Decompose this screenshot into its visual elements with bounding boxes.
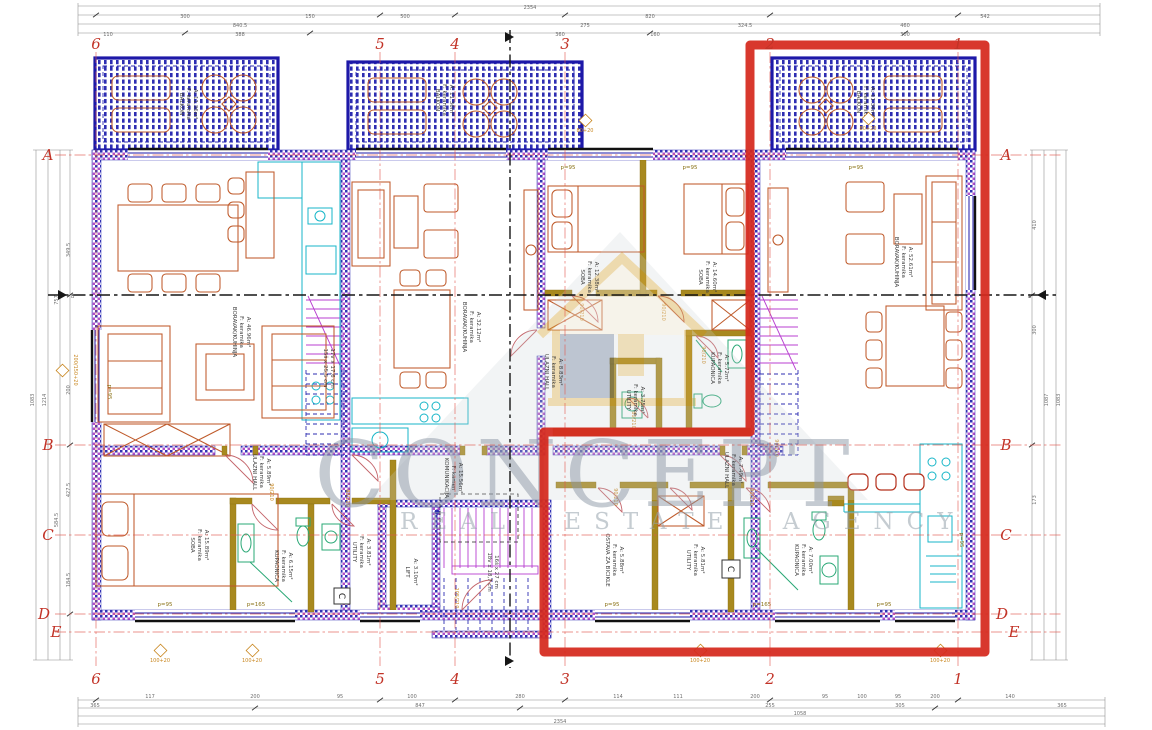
svg-text:100: 100 [407, 694, 417, 700]
c-box: C [334, 588, 350, 604]
grid-col-label: 2 [764, 670, 775, 688]
svg-text:15š x 25,5 cm: 15š x 25,5 cm [322, 349, 329, 388]
svg-text:p=95: p=95 [106, 384, 112, 400]
grid-col-label: 3 [560, 670, 570, 688]
svg-text:1058: 1058 [794, 711, 807, 717]
dimension-strip-left: 349.5 200 427.5 184.5 757 584.5 1214 108… [30, 150, 73, 660]
svg-text:1087: 1087 [1044, 394, 1050, 407]
svg-text:F: keramika: F: keramika [358, 536, 364, 568]
grid-row-label: C [1000, 526, 1012, 544]
balcony-label: BALKON F: keramika A: 11.36m² [178, 88, 199, 120]
svg-text:324.5: 324.5 [738, 23, 752, 29]
svg-text:410: 410 [1032, 220, 1038, 230]
furniture-left-unit [96, 172, 334, 586]
svg-text:80+20: 80+20 [860, 126, 877, 132]
svg-text:UTILITY: UTILITY [351, 542, 357, 563]
stair-label: 16š x 27 cm18v x 18,7 cm [486, 552, 500, 591]
window-tag: 200/150+20 [56, 354, 78, 385]
svg-text:365: 365 [1057, 703, 1067, 709]
svg-text:F: keramika: F: keramika [468, 311, 474, 343]
svg-text:300: 300 [180, 14, 190, 20]
svg-text:A: 5.81m²: A: 5.81m² [699, 546, 706, 573]
window [966, 196, 976, 290]
grid-row-label: E [1008, 623, 1020, 641]
room-label: SOBAF: keramikaA: 14.60m² [697, 261, 718, 293]
svg-text:C: C [336, 593, 346, 599]
grid-col-label: 1 [953, 35, 963, 53]
svg-text:KUPAONICA: KUPAONICA [709, 352, 715, 384]
svg-text:A: 8.83m²: A: 8.83m² [557, 358, 564, 385]
room-label: ULAZNI HALLF: keramikaA: 7.49m² [723, 452, 744, 489]
svg-text:111: 111 [673, 694, 683, 700]
svg-text:18v x 18,7 cm: 18v x 18,7 cm [486, 552, 492, 591]
dimension-strip-bottom: 365 117 200 95 100 280 114 111 200 95 10… [78, 694, 1105, 727]
svg-text:F: keramika: F: keramika [730, 454, 736, 486]
grid-row-label: C [42, 526, 54, 544]
svg-text:80+20: 80+20 [577, 128, 594, 134]
window [548, 149, 653, 160]
svg-text:F: keramika: F: keramika [196, 529, 202, 561]
window [775, 610, 880, 621]
svg-text:427.5: 427.5 [66, 483, 72, 497]
svg-text:A: 11.36m²: A: 11.36m² [869, 87, 876, 118]
svg-text:500: 500 [400, 14, 410, 20]
svg-text:2354: 2354 [524, 5, 537, 11]
svg-text:255: 255 [765, 703, 775, 709]
svg-text:p=165: p=165 [753, 602, 772, 608]
svg-text:110: 110 [103, 32, 113, 38]
room-label: BORAVAK/KUHINJAF: keramikaA: 32.12m² [461, 302, 482, 353]
svg-text:A: 5.89m²: A: 5.89m² [265, 458, 272, 485]
svg-text:300: 300 [900, 32, 910, 38]
svg-text:B: B [1028, 294, 1032, 300]
svg-text:SOBA: SOBA [697, 269, 703, 285]
svg-text:A: 15.56m²: A: 15.56m² [457, 463, 464, 494]
svg-text:280: 280 [515, 694, 525, 700]
grid-col-label: 4 [449, 670, 460, 688]
svg-text:SOBA: SOBA [579, 269, 585, 285]
svg-text:F: keramika: F: keramika [238, 316, 244, 348]
section-marker [58, 290, 67, 300]
grid-row-label: D [995, 605, 1008, 623]
room-label: LIFTA: 3.10m² [404, 558, 419, 585]
balcony-middle: BALKON F: keramika A: 11.36m² [348, 62, 582, 150]
svg-text:ULAZNI HALL: ULAZNI HALL [543, 354, 549, 391]
svg-text:F: keramika: F: keramika [692, 544, 698, 576]
svg-text:UTILITY: UTILITY [685, 550, 691, 571]
svg-text:1083: 1083 [1056, 394, 1062, 407]
svg-text:KOMUNIKACIJA: KOMUNIKACIJA [443, 458, 449, 498]
svg-text:BORAVAK/KUHINJA: BORAVAK/KUHINJA [231, 307, 237, 358]
svg-text:F: keramika: F: keramika [280, 550, 286, 582]
grid-col-label: 4 [449, 35, 460, 53]
room-label: SOBAF: keramikaA: 15.89m² [189, 529, 210, 561]
grid-row-label: D [37, 605, 50, 623]
svg-text:p=95: p=95 [604, 602, 620, 608]
grid-col-label: 1 [953, 670, 963, 688]
balcony-left: BALKON F: keramika A: 11.36m² [95, 58, 278, 150]
grid-col-label: 3 [560, 35, 570, 53]
window [92, 330, 102, 422]
floor-plan-page: 2354 840.5 820 300 150 500 542 275 324.5… [0, 0, 1152, 730]
svg-text:KUPAONICA: KUPAONICA [793, 544, 799, 576]
svg-text:F: keramika: F: keramika [441, 84, 447, 116]
grid-row-label: A [41, 146, 54, 164]
balcony-label: BALKON F: keramika A: 11.36m² [434, 84, 455, 116]
svg-text:95: 95 [822, 694, 828, 700]
stair-label: 17v x 17,6 cm15š x 25,5 cm [322, 348, 335, 387]
svg-text:F: keramika: F: keramika [185, 88, 191, 120]
dimension-strip-top: 2354 840.5 820 300 150 500 542 275 324.5… [78, 3, 1100, 38]
grid-row-label: B [41, 436, 53, 454]
svg-text:90/210: 90/210 [268, 483, 274, 501]
svg-text:100: 100 [857, 694, 867, 700]
svg-text:F: keramika: F: keramika [632, 384, 638, 416]
svg-text:2354: 2354 [554, 719, 567, 725]
svg-text:A: 5.88m²: A: 5.88m² [618, 546, 625, 573]
svg-text:BALKON: BALKON [855, 91, 861, 113]
window [595, 610, 690, 621]
svg-text:100+20: 100+20 [930, 658, 950, 664]
window [360, 610, 420, 621]
svg-text:B: B [71, 294, 75, 300]
svg-text:ULAZNI HALL: ULAZNI HALL [251, 454, 257, 491]
grid-col-label: 6 [91, 670, 101, 688]
svg-text:BALKON: BALKON [178, 93, 184, 115]
svg-text:F: keramika: F: keramika [716, 352, 722, 384]
svg-text:A: 11.36m²: A: 11.36m² [448, 85, 455, 116]
svg-text:p=165: p=165 [247, 602, 266, 608]
svg-text:A: 7.49m²: A: 7.49m² [737, 456, 744, 483]
svg-text:173: 173 [1032, 495, 1038, 505]
grid-col-label: 5 [375, 670, 385, 688]
svg-text:SOBA: SOBA [189, 537, 195, 553]
svg-text:95: 95 [895, 694, 901, 700]
svg-text:A: 3.81m²: A: 3.81m² [365, 538, 372, 565]
svg-text:275: 275 [580, 23, 590, 29]
grid-col-label: 5 [375, 35, 385, 53]
svg-text:820: 820 [645, 14, 655, 20]
svg-text:300: 300 [1032, 325, 1038, 335]
svg-text:184.5: 184.5 [66, 573, 72, 587]
svg-text:A: 7.00m²: A: 7.00m² [807, 546, 814, 573]
svg-text:200: 200 [250, 694, 260, 700]
room-label: KUPAONICAF: keramikaA: 5.72m² [709, 352, 730, 384]
svg-text:584.5: 584.5 [54, 513, 60, 527]
svg-text:349.5: 349.5 [66, 243, 72, 257]
svg-text:200: 200 [930, 694, 940, 700]
grid-col-label: 6 [91, 35, 101, 53]
svg-text:365: 365 [90, 703, 100, 709]
svg-text:A: 5.72m²: A: 5.72m² [723, 354, 730, 381]
svg-text:16š x 27 cm: 16š x 27 cm [493, 555, 500, 589]
svg-text:1214: 1214 [42, 394, 48, 407]
svg-text:BORAVAK/KUHINJA: BORAVAK/KUHINJA [461, 302, 467, 353]
window [786, 149, 958, 160]
svg-text:95: 95 [337, 694, 343, 700]
svg-text:200: 200 [66, 385, 72, 395]
svg-text:p=95: p=95 [876, 602, 892, 608]
window [356, 149, 506, 160]
floor-plan-canvas: 2354 840.5 820 300 150 500 542 275 324.5… [0, 0, 1152, 730]
svg-text:A: 6.15m²: A: 6.15m² [287, 552, 294, 579]
svg-text:KUPAONICA: KUPAONICA [273, 550, 279, 582]
svg-text:OSTAVA ZA BICIKLE: OSTAVA ZA BICIKLE [604, 533, 610, 587]
section-marker [1037, 290, 1046, 300]
svg-text:A: 3.75m²: A: 3.75m² [639, 386, 646, 413]
svg-text:A: 52.61m²: A: 52.61m² [907, 247, 914, 278]
watermark-tagline: REAL ESTATE AGENCY [400, 509, 965, 535]
svg-text:388: 388 [235, 32, 245, 38]
svg-text:100+20: 100+20 [242, 658, 262, 664]
window [895, 610, 955, 621]
svg-text:A: 12.38m²: A: 12.38m² [593, 262, 600, 293]
svg-text:BORAVAK/KUHINJA: BORAVAK/KUHINJA [893, 237, 899, 288]
window-tag: 100+20 [150, 644, 170, 664]
svg-text:100+20: 100+20 [690, 658, 710, 664]
balcony-label: BALKON F: keramika A: 11.36m² [855, 86, 876, 118]
svg-text:F: keramika: F: keramika [586, 261, 592, 293]
window [135, 610, 295, 621]
svg-text:A: 14.60m²: A: 14.60m² [711, 262, 718, 293]
svg-text:A: 15.89m²: A: 15.89m² [203, 530, 210, 561]
svg-text:100+20: 100+20 [150, 658, 170, 664]
window [128, 149, 268, 160]
svg-text:A: 11.36m²: A: 11.36m² [192, 89, 199, 120]
svg-text:200/150+20: 200/150+20 [72, 354, 78, 385]
svg-text:117: 117 [145, 694, 155, 700]
svg-text:ULAZNI HALL: ULAZNI HALL [723, 452, 729, 489]
svg-text:1083: 1083 [30, 394, 36, 407]
svg-text:p=95: p=95 [848, 165, 864, 171]
c-box: C [722, 560, 740, 578]
svg-text:840.5: 840.5 [233, 23, 247, 29]
svg-text:160: 160 [650, 32, 660, 38]
room-label: OSTAVA ZA BICIKLEF: keramikaA: 5.88m² [604, 533, 625, 587]
room-label: BORAVAK/KUHINJAF: keramikaA: 46.96m² [231, 307, 252, 358]
grid-row-label: E [50, 623, 62, 641]
section-marker [505, 656, 514, 666]
svg-text:A: 32.12m²: A: 32.12m² [475, 312, 482, 343]
room-label: ULAZNI HALLF: keramikaA: 5.89m² [251, 454, 272, 491]
svg-text:LIFT: LIFT [404, 566, 410, 578]
svg-text:460: 460 [900, 23, 910, 29]
room-label: UTILITYF: keramikaA: 5.81m² [685, 544, 706, 576]
grid-row-label: B [999, 436, 1011, 454]
svg-text:p=95: p=95 [157, 602, 173, 608]
svg-text:C: C [725, 566, 735, 572]
balcony-right: BALKON F: keramika A: 11.36m² [772, 58, 975, 150]
svg-text:847: 847 [415, 703, 425, 709]
svg-text:F: keramika: F: keramika [611, 544, 617, 576]
svg-text:F: keramika: F: keramika [258, 456, 264, 488]
svg-text:305: 305 [895, 703, 905, 709]
svg-text:105/210: 105/210 [453, 588, 459, 609]
svg-text:F: keramika: F: keramika [704, 261, 710, 293]
svg-text:p=95: p=95 [560, 165, 576, 171]
svg-text:200: 200 [750, 694, 760, 700]
grid-col-label: 2 [764, 35, 775, 53]
room-label: UTILITYF: keramikaA: 3.81m² [351, 536, 372, 568]
room-label: KUPAONICAF: keramikaA: 6.15m² [273, 550, 294, 582]
svg-text:150: 150 [305, 14, 315, 20]
svg-text:F: keramika: F: keramika [550, 356, 556, 388]
svg-text:F: keramika: F: keramika [800, 544, 806, 576]
svg-text:A: 46.96m²: A: 46.96m² [245, 317, 252, 348]
svg-text:114: 114 [613, 694, 623, 700]
svg-text:F: keramika: F: keramika [900, 246, 906, 278]
svg-text:A: 3.10m²: A: 3.10m² [412, 558, 419, 585]
window-tag: 100+20 [242, 644, 262, 664]
svg-text:17v x 17,6 cm: 17v x 17,6 cm [329, 348, 335, 387]
dimension-strip-right: 410 300 173 1087 1083 [1029, 150, 1068, 660]
room-label: ULAZNI HALLF: keramikaA: 8.83m² [543, 354, 564, 391]
room-label: KUPAONICAF: keramikaA: 7.00m² [793, 544, 814, 576]
svg-text:140: 140 [1005, 694, 1015, 700]
grid-row-label: A [999, 146, 1012, 164]
svg-text:542: 542 [980, 14, 990, 20]
svg-text:UTILITY: UTILITY [625, 390, 631, 411]
svg-text:p=95: p=95 [682, 165, 698, 171]
svg-text:BALKON: BALKON [434, 89, 440, 111]
